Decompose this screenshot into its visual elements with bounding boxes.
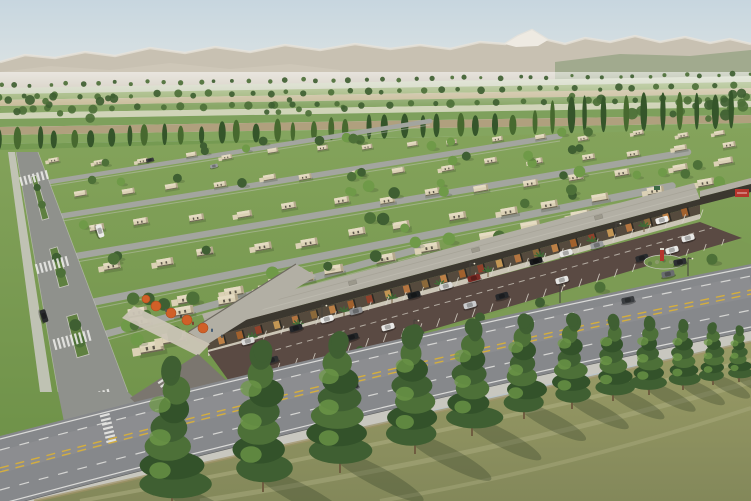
distant-tree — [4, 96, 12, 104]
distant-tree — [498, 76, 504, 82]
light-pole-arm — [470, 263, 474, 264]
distant-tree — [628, 85, 635, 92]
tree-top — [331, 331, 349, 352]
distant-tree — [615, 83, 623, 91]
tree-highlight — [508, 342, 523, 353]
tree — [349, 188, 357, 196]
poplar-tree — [457, 113, 464, 137]
poplar-tree — [509, 115, 516, 135]
palm-frond — [644, 226, 649, 227]
distant-tree — [328, 89, 334, 95]
poplar-tree — [640, 92, 647, 131]
distant-tree — [314, 102, 319, 107]
tree — [566, 184, 577, 195]
tree-highlight — [454, 350, 471, 363]
tree — [693, 160, 703, 170]
tree — [101, 159, 109, 167]
light-head — [692, 258, 694, 260]
distant-tree — [455, 87, 460, 92]
umbrella — [166, 308, 176, 318]
distant-tree — [586, 75, 590, 79]
distant-tree — [282, 77, 288, 83]
tree-highlight — [704, 353, 713, 360]
distant-tree — [737, 98, 746, 107]
house-wing — [668, 168, 674, 174]
distant-tree — [433, 101, 438, 106]
poplar-tree — [623, 95, 629, 131]
distant-tree — [230, 79, 234, 83]
distant-tree — [88, 105, 97, 114]
distant-tree — [287, 97, 292, 102]
house-wing — [711, 133, 715, 137]
light-head — [620, 223, 622, 225]
tree — [462, 152, 471, 161]
tree — [348, 134, 358, 144]
distant-tree — [341, 105, 348, 112]
tree — [557, 128, 566, 137]
distant-tree — [653, 84, 659, 90]
distant-tree — [668, 83, 674, 89]
tree-top — [644, 316, 654, 328]
poplar-tree — [199, 126, 204, 144]
house-wing — [713, 161, 719, 167]
green-sign — [654, 186, 660, 190]
tree-highlight — [558, 359, 572, 369]
poplar-tree — [433, 113, 439, 137]
distant-tree — [296, 106, 302, 112]
aerial-render-canvas — [0, 0, 751, 501]
house-wing — [232, 214, 238, 220]
distant-tree — [379, 90, 384, 95]
tree — [242, 144, 250, 152]
tree — [427, 141, 437, 151]
distant-tree — [268, 102, 275, 109]
distant-tree — [229, 91, 235, 97]
tree-highlight — [731, 340, 739, 346]
distant-tree — [305, 110, 312, 117]
tree-top — [407, 324, 423, 343]
house-wing — [670, 148, 675, 153]
distant-tree — [697, 73, 702, 78]
light-pole-arm — [688, 258, 692, 259]
house-wing — [495, 212, 501, 218]
person — [192, 322, 194, 326]
distant-tree — [25, 95, 35, 105]
tree — [447, 138, 455, 146]
house-wing — [437, 168, 442, 173]
person — [180, 315, 182, 319]
distant-tree — [81, 81, 87, 87]
distant-tree — [68, 105, 76, 113]
tree-highlight — [508, 364, 523, 375]
distant-tree — [717, 74, 720, 77]
distant-tree — [670, 111, 677, 118]
tree-highlight — [149, 462, 170, 479]
poplar-tree — [712, 95, 719, 130]
tree-top — [709, 322, 717, 331]
person — [211, 329, 213, 333]
tree-highlight — [731, 353, 739, 359]
distant-tree — [57, 110, 63, 116]
distant-tree — [737, 89, 746, 98]
distant-tree — [345, 77, 351, 83]
light-head — [326, 305, 328, 307]
distant-tree — [161, 80, 165, 84]
poplar-tree — [233, 120, 240, 143]
poplar-tree — [51, 130, 57, 148]
distant-tree — [96, 81, 101, 86]
poplar-tree — [660, 92, 665, 130]
poplar-tree — [550, 100, 555, 134]
tree-highlight — [319, 430, 339, 445]
light-head — [418, 320, 420, 322]
distant-tree — [461, 75, 466, 80]
tree-top — [679, 319, 688, 330]
median-tree — [38, 201, 46, 209]
shrub — [669, 260, 673, 264]
tree-highlight — [240, 446, 261, 463]
house-wing — [218, 157, 222, 161]
distant-tree — [397, 88, 402, 93]
distant-tree — [598, 88, 602, 92]
poplar-tree — [87, 130, 94, 147]
distant-tree — [13, 108, 20, 115]
distant-tree — [600, 75, 604, 79]
poplar-tree — [162, 124, 167, 146]
distant-tree — [477, 86, 485, 94]
distant-tree — [109, 106, 115, 112]
tree — [364, 212, 376, 224]
light-pole-arm — [616, 223, 620, 224]
distant-tree — [429, 76, 434, 81]
tree-top — [465, 318, 480, 335]
tree — [377, 213, 389, 225]
distant-tree — [705, 115, 712, 122]
tree-highlight — [240, 380, 261, 397]
distant-tree — [380, 77, 385, 82]
distant-tree — [200, 104, 208, 112]
person — [221, 335, 223, 339]
tree — [79, 220, 88, 229]
tree-highlight — [454, 375, 471, 388]
tree-highlight — [558, 380, 572, 390]
tree — [568, 145, 577, 154]
distant-tree — [529, 75, 533, 79]
distant-tree — [630, 74, 634, 78]
distant-tree — [649, 75, 653, 79]
tree — [448, 156, 458, 166]
tree-highlight — [704, 339, 713, 346]
distant-tree — [129, 82, 133, 86]
tree — [410, 237, 421, 248]
distant-tree — [178, 80, 183, 85]
distant-tree — [712, 83, 717, 88]
person — [165, 309, 167, 313]
tree-highlight — [396, 415, 414, 429]
distant-tree — [544, 76, 548, 80]
tree-highlight — [319, 400, 339, 415]
distant-tree — [450, 76, 454, 80]
house-wing — [674, 135, 678, 139]
tree — [388, 187, 399, 198]
tree-highlight — [240, 413, 261, 430]
scene-svg — [0, 0, 751, 501]
median-tree — [69, 319, 81, 331]
tree — [363, 180, 375, 192]
tree-top — [254, 340, 273, 363]
tree-highlight — [672, 338, 682, 346]
distant-tree — [684, 96, 692, 104]
poplar-tree — [274, 119, 281, 142]
house-wing — [171, 299, 178, 306]
house-wing — [414, 248, 421, 255]
tree — [259, 137, 268, 146]
tree-highlight — [600, 337, 612, 346]
tree-top — [517, 313, 530, 329]
poplar-tree — [108, 128, 115, 147]
distant-tree — [331, 79, 335, 83]
tree — [202, 246, 211, 255]
tree — [400, 223, 409, 232]
tree-highlight — [600, 356, 612, 365]
umbrella — [151, 301, 161, 311]
poplar-tree — [219, 121, 226, 143]
tree-top — [163, 356, 182, 379]
distant-tree — [85, 113, 94, 122]
distant-tree — [212, 79, 216, 83]
tree — [237, 178, 247, 188]
tree-highlight — [600, 375, 612, 384]
tree — [186, 291, 199, 304]
tree — [633, 171, 642, 180]
poplar-tree — [472, 115, 479, 136]
tree — [173, 174, 182, 183]
tree — [131, 333, 144, 346]
tree — [315, 136, 325, 146]
distant-tree — [264, 109, 269, 114]
poplar-tree — [694, 93, 699, 130]
poplar-tree — [140, 124, 147, 145]
distant-tree — [251, 91, 256, 96]
tree — [595, 282, 606, 293]
tree — [201, 147, 209, 155]
house-wing — [249, 247, 255, 253]
tree — [439, 186, 449, 196]
distant-tree — [593, 98, 601, 106]
distant-tree — [276, 109, 282, 115]
distant-tree — [619, 75, 622, 78]
distant-tree — [493, 99, 500, 106]
distant-tree — [199, 80, 204, 85]
poplar-tree — [601, 96, 607, 132]
distant-tree — [145, 79, 149, 83]
distant-tree — [408, 100, 414, 106]
distant-tree — [474, 100, 479, 105]
distant-tree — [730, 71, 736, 77]
house-wing — [259, 177, 264, 182]
tree — [117, 178, 125, 186]
tree-highlight — [508, 387, 523, 398]
tree — [108, 253, 120, 265]
tree — [323, 262, 332, 271]
poplar-tree — [492, 113, 498, 135]
house-wing — [295, 243, 301, 249]
palm-frond — [392, 298, 397, 299]
umbrella — [142, 295, 150, 303]
light-pole-arm — [414, 320, 418, 321]
tree-highlight — [637, 337, 648, 346]
tree-highlight — [672, 369, 682, 377]
light-pole-arm — [560, 285, 564, 286]
distant-tree — [268, 79, 272, 83]
tree — [680, 169, 690, 179]
distant-tree — [396, 78, 401, 83]
distant-tree — [479, 76, 482, 79]
distant-tree — [77, 94, 82, 99]
house-wing — [45, 160, 49, 164]
distant-tree — [134, 103, 141, 110]
distant-tree — [519, 75, 523, 79]
shrub — [648, 261, 652, 265]
distant-tree — [300, 90, 306, 96]
house-wing — [134, 161, 138, 165]
tree-highlight — [149, 396, 170, 413]
distant-tree — [358, 102, 364, 108]
poplar-tree — [677, 92, 683, 130]
tree — [347, 172, 357, 182]
distant-tree — [244, 101, 252, 109]
distant-tree — [386, 102, 393, 109]
distant-tree — [541, 99, 547, 105]
tree — [559, 171, 567, 179]
distant-tree — [229, 102, 235, 108]
distant-tree — [268, 91, 275, 98]
distant-tree — [517, 86, 522, 91]
distant-tree — [301, 77, 306, 82]
house-wing — [630, 133, 634, 137]
house-wing — [154, 338, 163, 347]
poplar-tree — [533, 110, 538, 134]
poplar-tree — [71, 130, 78, 148]
distant-tree — [720, 97, 730, 107]
light-pole-arm — [322, 305, 326, 306]
distant-tree — [110, 94, 119, 103]
poplar-tree — [568, 97, 576, 134]
distant-tree — [11, 82, 17, 88]
tree — [575, 144, 583, 152]
tree-highlight — [149, 429, 170, 446]
tree — [584, 127, 593, 136]
poplar-tree — [253, 124, 260, 143]
distant-tree — [438, 86, 445, 93]
distant-tree — [42, 98, 49, 105]
distant-tree — [63, 81, 68, 86]
tree-highlight — [396, 387, 414, 401]
distant-tree — [415, 77, 419, 81]
tree — [535, 298, 545, 308]
median-tree — [56, 268, 66, 278]
distant-tree — [572, 85, 578, 91]
poplar-tree — [178, 126, 184, 145]
tree-top — [608, 314, 619, 327]
distant-tree — [632, 97, 637, 102]
umbrella — [182, 315, 192, 325]
poplar-tree — [38, 126, 43, 149]
distant-tree — [421, 87, 427, 93]
palm-frond — [344, 311, 349, 312]
distant-tree — [247, 79, 252, 84]
tree-highlight — [637, 354, 648, 363]
poplar-tree — [14, 127, 22, 150]
distant-tree — [174, 89, 182, 97]
tree — [127, 292, 139, 304]
tree — [707, 254, 718, 265]
tree-highlight — [396, 359, 414, 373]
distant-tree — [205, 89, 212, 96]
umbrella — [198, 323, 208, 333]
poplar-tree — [729, 90, 734, 128]
distant-tree — [334, 101, 339, 106]
tree-highlight — [319, 369, 339, 384]
tree — [443, 232, 456, 245]
distant-tree — [313, 78, 318, 83]
median-tree — [34, 184, 41, 191]
tree-top — [566, 313, 578, 327]
tree-top — [736, 325, 743, 333]
distant-tree — [685, 72, 689, 76]
tree — [437, 179, 445, 187]
distant-tree — [692, 83, 699, 90]
distant-tree — [365, 87, 373, 95]
distant-tree — [161, 104, 167, 110]
house-wing — [98, 266, 104, 272]
distant-tree — [29, 105, 36, 112]
house-wing — [132, 347, 141, 356]
poplar-tree — [291, 122, 296, 141]
distant-tree — [96, 97, 105, 106]
distant-tree — [537, 85, 542, 90]
distant-tree — [348, 88, 354, 94]
house-wing — [90, 162, 94, 166]
tree — [88, 176, 96, 184]
distant-tree — [570, 74, 573, 77]
distant-tree — [283, 89, 288, 94]
distant-tree — [612, 98, 618, 104]
distant-tree — [129, 94, 133, 98]
distant-tree — [34, 93, 40, 99]
tree — [523, 151, 533, 161]
distant-tree — [176, 102, 184, 110]
tree-highlight — [704, 366, 713, 373]
distant-tree — [554, 86, 559, 91]
distant-tree — [50, 83, 54, 87]
shrub — [655, 260, 659, 264]
tree — [520, 199, 530, 209]
palm-frond — [592, 241, 597, 242]
distant-tree — [28, 84, 32, 88]
distant-tree — [190, 93, 196, 99]
distant-tree — [446, 100, 455, 109]
tree — [357, 168, 366, 177]
distant-tree — [365, 78, 369, 82]
tree — [574, 166, 586, 178]
tree-highlight — [731, 365, 739, 371]
tree-highlight — [558, 338, 572, 348]
tree-highlight — [672, 353, 682, 361]
tree — [370, 250, 382, 262]
distant-tree — [499, 87, 505, 93]
light-head — [564, 285, 566, 287]
